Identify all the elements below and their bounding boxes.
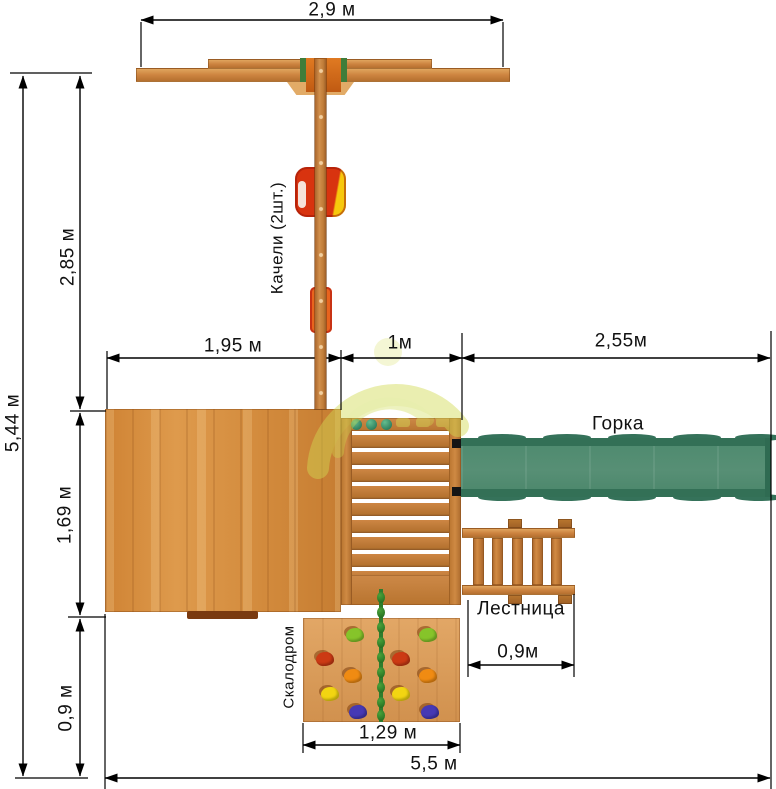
dim-overall-depth: 5,44 м (4, 394, 23, 452)
dim-beam-width: 2,9 м (308, 1, 355, 20)
slide-chute (461, 438, 771, 497)
dim-overall-width: 5,5 м (410, 755, 457, 774)
slide-mount-bracket (452, 439, 461, 448)
climbing-hold-green (419, 628, 437, 642)
ladder-post-stub (558, 519, 572, 528)
rope-knot (377, 667, 385, 678)
platform-entry-strip (187, 611, 258, 619)
slide-mount-bracket (452, 487, 461, 496)
roof-decor-cap (381, 419, 392, 430)
climbing-wall-label: Скалодром (282, 625, 297, 708)
rope-knot (377, 592, 385, 603)
roof-bottom-band (341, 575, 461, 605)
climbing-hold-yellow (392, 687, 410, 701)
climbing-hold-blue (349, 705, 367, 719)
ladder-rail-top (462, 528, 575, 538)
swing-frame-post (314, 58, 327, 410)
dim-tower-width: 1м (388, 334, 413, 353)
rope-knot (377, 710, 385, 721)
climbing-hold-orange (344, 669, 362, 683)
ladder-label: Лестница (477, 600, 565, 619)
ladder-rung (492, 538, 503, 585)
dim-swing-zone-depth: 2,85 м (59, 228, 78, 286)
rope-knot (377, 637, 385, 648)
rope-knot (377, 682, 385, 693)
rope-knot (377, 697, 385, 708)
platform-deck (105, 409, 341, 612)
swings-label: Качели (2шт.) (269, 182, 286, 294)
rope-knot (377, 622, 385, 633)
ladder-rung (551, 538, 562, 585)
climbing-hold-red (392, 652, 410, 666)
dim-slide-length: 2,55м (595, 332, 648, 351)
ladder-post-stub (508, 519, 522, 528)
climbing-hold-red (316, 652, 334, 666)
swing-seat-handle-slot (298, 181, 306, 208)
ladder-rung (532, 538, 543, 585)
playground-plan-canvas: 2,9 м 5,44 м 2,85 м 1,69 м 0,9 м Качели … (0, 0, 776, 789)
roof-decor-cap (351, 419, 362, 430)
dim-climb-zone-depth: 0,9 м (57, 684, 76, 731)
slide-label: Горка (592, 415, 644, 434)
rope-knot (377, 652, 385, 663)
climbing-hold-yellow (321, 687, 339, 701)
climbing-hold-green (346, 628, 364, 642)
roof-left-rail (341, 418, 352, 605)
dim-platform-width: 1,95 м (204, 337, 262, 356)
ladder-rail-bottom (462, 585, 575, 595)
climbing-hold-orange (419, 669, 437, 683)
dim-climbing-wall-width: 1,29 м (359, 724, 417, 743)
rope-knot (377, 607, 385, 618)
dim-platform-depth: 1,69 м (56, 486, 75, 544)
dim-ladder-width: 0,9м (497, 643, 538, 662)
ladder-rung (473, 538, 484, 585)
climbing-hold-blue (421, 705, 439, 719)
roof-decor-cap (366, 419, 377, 430)
ladder-rung (512, 538, 523, 585)
